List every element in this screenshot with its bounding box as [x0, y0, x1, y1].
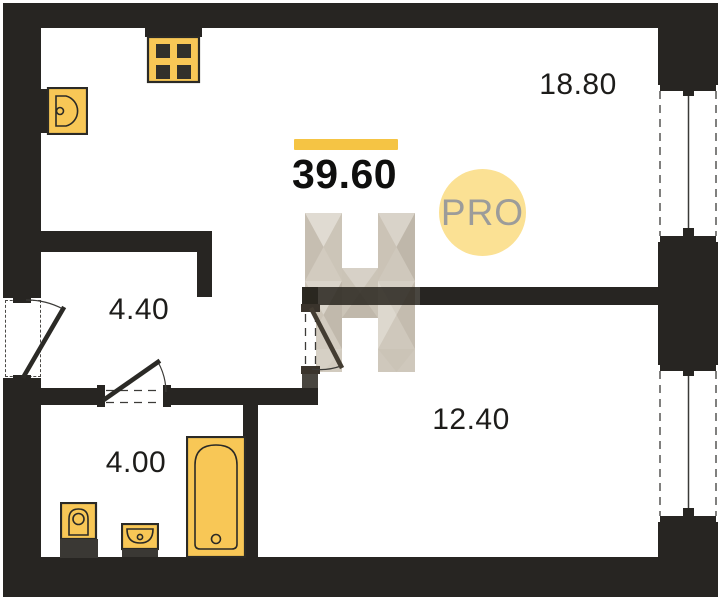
pro-badge: PRO [439, 169, 526, 256]
bathtub-icon [186, 436, 246, 558]
window-icon-bedroom [660, 367, 716, 517]
toilet-icon [60, 502, 98, 558]
bathroom-door-icon [97, 362, 171, 407]
window-icon-living [660, 87, 716, 237]
pro-badge-label: PRO [441, 194, 524, 231]
room-area-bedroom: 12.40 [432, 403, 510, 437]
room-area-bath: 4.00 [106, 446, 166, 480]
bedroom-door-icon [301, 304, 341, 374]
washbasin-icon [121, 523, 159, 558]
floor-plan: 39.60 PRO 18.80 4.40 12.40 4.00 [0, 0, 721, 600]
kitchen-sink-icon [41, 87, 88, 135]
room-area-hall: 4.40 [109, 293, 169, 327]
stove-icon [145, 28, 202, 85]
accent-bar [294, 139, 398, 150]
total-area-label: 39.60 [292, 154, 397, 195]
room-area-living: 18.80 [539, 68, 617, 102]
entrance-door-icon [13, 296, 63, 382]
